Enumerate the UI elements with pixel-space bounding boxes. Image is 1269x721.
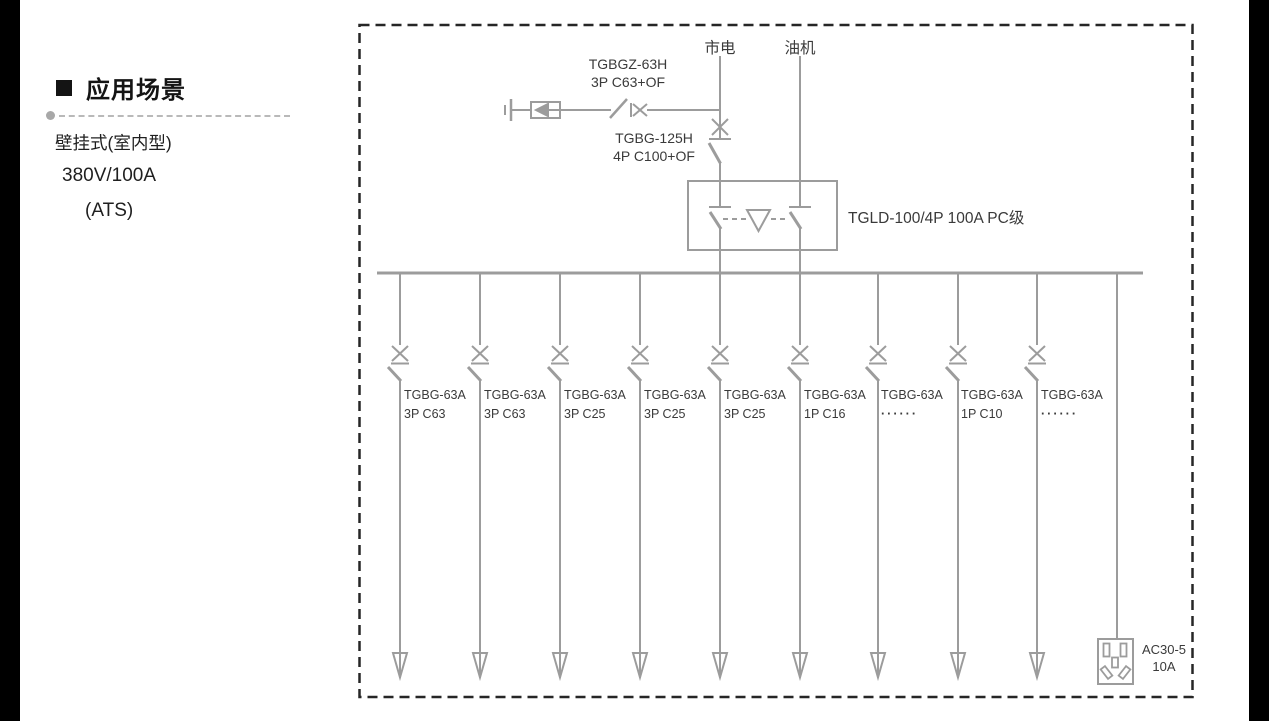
branch-circuit-9 bbox=[1025, 274, 1046, 678]
spd-breaker-icon bbox=[610, 99, 647, 118]
branch-spec: 3P C25 bbox=[564, 405, 642, 424]
branch-label-8: TGBG-63A 1P C10 bbox=[961, 386, 1039, 424]
spd-breaker-model: TGBGZ-63H bbox=[576, 56, 680, 74]
spd-breaker-label: TGBGZ-63H 3P C63+OF bbox=[576, 56, 680, 91]
branch-model: TGBG-63A bbox=[881, 386, 959, 405]
branch-spec: ······ bbox=[1041, 405, 1119, 424]
generator-source-label: 油机 bbox=[770, 36, 830, 58]
branch-spec: 3P C25 bbox=[644, 405, 722, 424]
mains-source-label: 市电 bbox=[690, 36, 750, 58]
socket-branch bbox=[1098, 274, 1133, 684]
branch-circuit-8 bbox=[946, 274, 967, 678]
mains-feeder bbox=[709, 56, 731, 182]
socket-rating: 10A bbox=[1136, 658, 1192, 675]
branch-label-9: TGBG-63A ······ bbox=[1041, 386, 1119, 424]
branch-spec: 1P C10 bbox=[961, 405, 1039, 424]
branch-circuit-5 bbox=[708, 274, 729, 678]
ats-actuator-icon bbox=[723, 210, 788, 231]
earth-ground-icon bbox=[505, 99, 511, 121]
socket-icon bbox=[1098, 639, 1133, 684]
branch-spec: 3P C25 bbox=[724, 405, 802, 424]
branch-circuit-4 bbox=[628, 274, 649, 678]
main-breaker-model: TGBG-125H bbox=[604, 129, 704, 147]
ats-pole-mains bbox=[709, 182, 731, 273]
branch-circuit-3 bbox=[548, 274, 569, 678]
branch-model: TGBG-63A bbox=[484, 386, 562, 405]
enclosure-dashed-border bbox=[360, 25, 1193, 697]
branch-model: TGBG-63A bbox=[804, 386, 882, 405]
branch-model: TGBG-63A bbox=[404, 386, 482, 405]
single-line-diagram bbox=[0, 0, 1269, 721]
branch-label-5: TGBG-63A 3P C25 bbox=[724, 386, 802, 424]
spd-breaker-spec: 3P C63+OF bbox=[576, 74, 680, 92]
branch-label-1: TGBG-63A 3P C63 bbox=[404, 386, 482, 424]
branch-model: TGBG-63A bbox=[564, 386, 642, 405]
branch-spec: 3P C63 bbox=[484, 405, 562, 424]
branch-model: TGBG-63A bbox=[961, 386, 1039, 405]
branch-label-7: TGBG-63A ······ bbox=[881, 386, 959, 424]
spd-arrester-icon bbox=[531, 102, 560, 118]
branch-model: TGBG-63A bbox=[644, 386, 722, 405]
branch-circuit-7 bbox=[866, 274, 887, 678]
main-breaker-spec: 4P C100+OF bbox=[604, 147, 704, 165]
page: 应用场景 壁挂式(室内型) 380V/100A (ATS) bbox=[0, 0, 1269, 721]
ats-pole-generator bbox=[789, 182, 811, 273]
spd-branch bbox=[505, 99, 720, 121]
ats-switch bbox=[688, 181, 837, 273]
socket-model: AC30-5 bbox=[1136, 641, 1192, 658]
branch-label-2: TGBG-63A 3P C63 bbox=[484, 386, 562, 424]
branch-label-6: TGBG-63A 1P C16 bbox=[804, 386, 882, 424]
ats-label: TGLD-100/4P 100A PC级 bbox=[848, 206, 1024, 228]
branch-circuit-2 bbox=[468, 274, 489, 678]
branch-label-3: TGBG-63A 3P C25 bbox=[564, 386, 642, 424]
socket-label: AC30-5 10A bbox=[1136, 641, 1192, 675]
main-breaker-label: TGBG-125H 4P C100+OF bbox=[604, 129, 704, 165]
branch-label-4: TGBG-63A 3P C25 bbox=[644, 386, 722, 424]
branch-model: TGBG-63A bbox=[1041, 386, 1119, 405]
branch-circuit-1 bbox=[388, 274, 409, 678]
branch-spec: ······ bbox=[881, 405, 959, 424]
branch-spec: 1P C16 bbox=[804, 405, 882, 424]
branch-circuit-6 bbox=[788, 274, 809, 678]
branch-spec: 3P C63 bbox=[404, 405, 482, 424]
branch-model: TGBG-63A bbox=[724, 386, 802, 405]
